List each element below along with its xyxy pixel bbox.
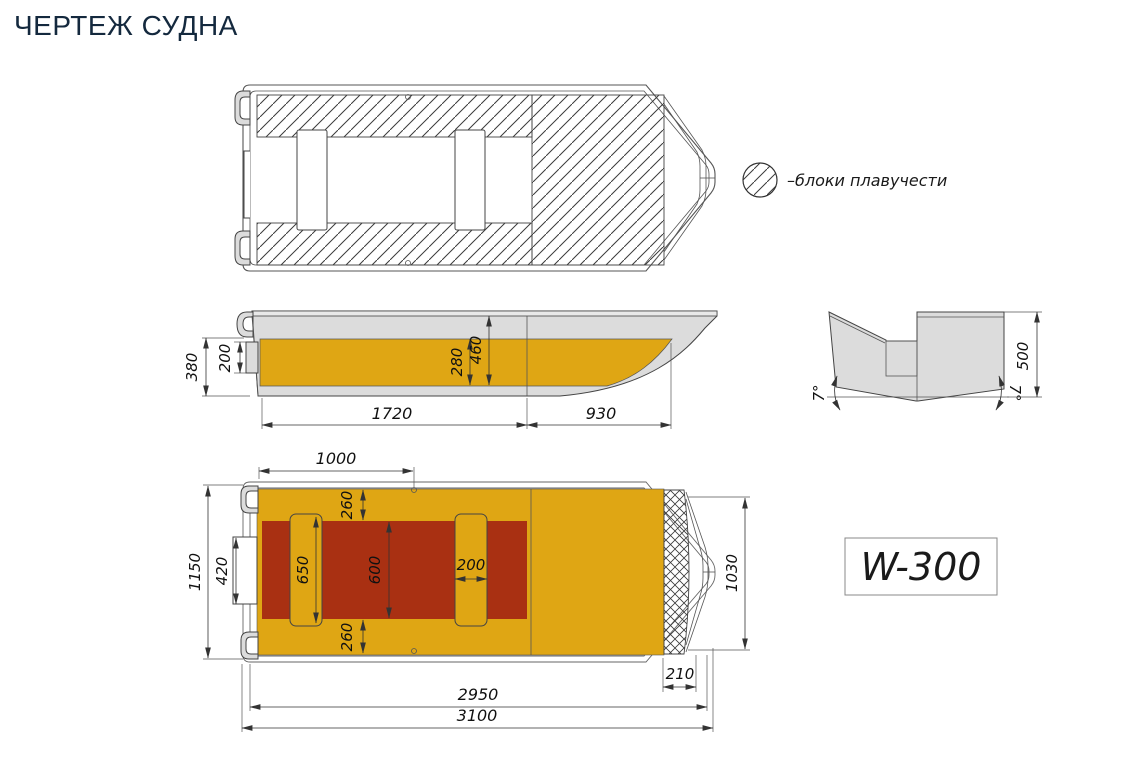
- dim-650: 650: [294, 556, 312, 585]
- deck-handle-top-inner: [246, 491, 258, 508]
- dim-260-top: 260: [338, 491, 356, 520]
- side-view: 380 200 280 460 1720 930: [183, 311, 717, 429]
- bow-deck-grating: [664, 490, 689, 654]
- dim-1030: 1030: [723, 554, 741, 592]
- dim-930: 930: [586, 404, 617, 423]
- plan-view: 1000 260 650 600 200 420 1150 260: [186, 449, 750, 732]
- dim-600: 600: [366, 556, 384, 585]
- dim-200-side: 200: [216, 344, 234, 373]
- dim-420: 420: [213, 557, 231, 586]
- paint-band: [260, 339, 672, 386]
- dim-angle-left: 7°: [810, 384, 828, 401]
- top-view: [235, 85, 715, 271]
- motor-mount-plan: [244, 151, 250, 218]
- dim-angle-right: 7°: [1006, 384, 1024, 401]
- model-label: W-300: [861, 545, 982, 589]
- drawing-page: ЧЕРТЕЖ СУДНА: [0, 0, 1143, 776]
- transom-view: 7° 7° 500: [810, 312, 1042, 410]
- dim-260-bottom: 260: [338, 623, 356, 652]
- deck-handle-bottom-inner: [246, 637, 258, 654]
- motor-mount-side: [246, 342, 258, 373]
- dim-280: 280: [448, 348, 466, 377]
- boat-drawing: –блоки плавучести 380 200 280: [0, 0, 1143, 776]
- legend-label: –блоки плавучести: [787, 171, 947, 190]
- handle-top-inner: [240, 97, 250, 119]
- transom-silhouette: [829, 312, 1004, 401]
- seat-mid: [455, 130, 485, 230]
- seat-aft: [297, 130, 327, 230]
- gunwale-cap: [252, 311, 717, 316]
- transom-handle-side-inner: [243, 317, 253, 331]
- handle-bottom-inner: [240, 237, 250, 259]
- dim-1000: 1000: [316, 449, 357, 468]
- dim-500: 500: [1014, 342, 1032, 371]
- dim-1720: 1720: [372, 404, 413, 423]
- motor-mount-deck: [233, 537, 257, 604]
- legend: –блоки плавучести: [743, 163, 947, 197]
- dim-1150: 1150: [186, 553, 204, 591]
- dim-200-plan: 200: [457, 556, 486, 574]
- model-plate: W-300: [845, 538, 997, 595]
- dim-380: 380: [183, 353, 201, 382]
- dim-460: 460: [467, 336, 485, 365]
- dim-2950: 2950: [458, 685, 499, 704]
- buoyancy-block-bow: [532, 95, 664, 265]
- buoyancy-legend-icon: [743, 163, 777, 197]
- dim-210: 210: [666, 665, 695, 683]
- dim-3100: 3100: [457, 706, 498, 725]
